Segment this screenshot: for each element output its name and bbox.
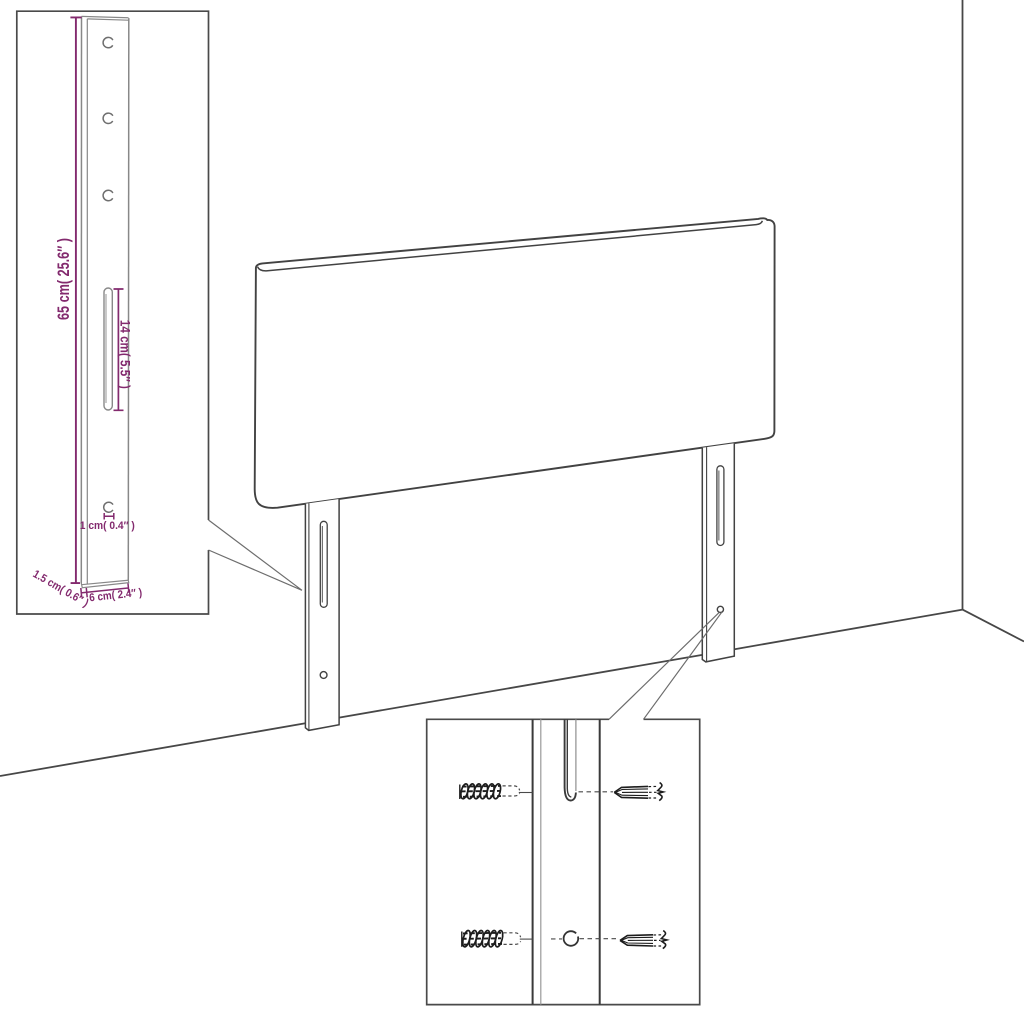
svg-text:65 cm( 25.6″ ): 65 cm( 25.6″ ) [54, 238, 73, 320]
svg-text:1 cm( 0.4″ ): 1 cm( 0.4″ ) [80, 520, 135, 532]
svg-text:14 cm( 5.5″ ): 14 cm( 5.5″ ) [117, 320, 132, 389]
